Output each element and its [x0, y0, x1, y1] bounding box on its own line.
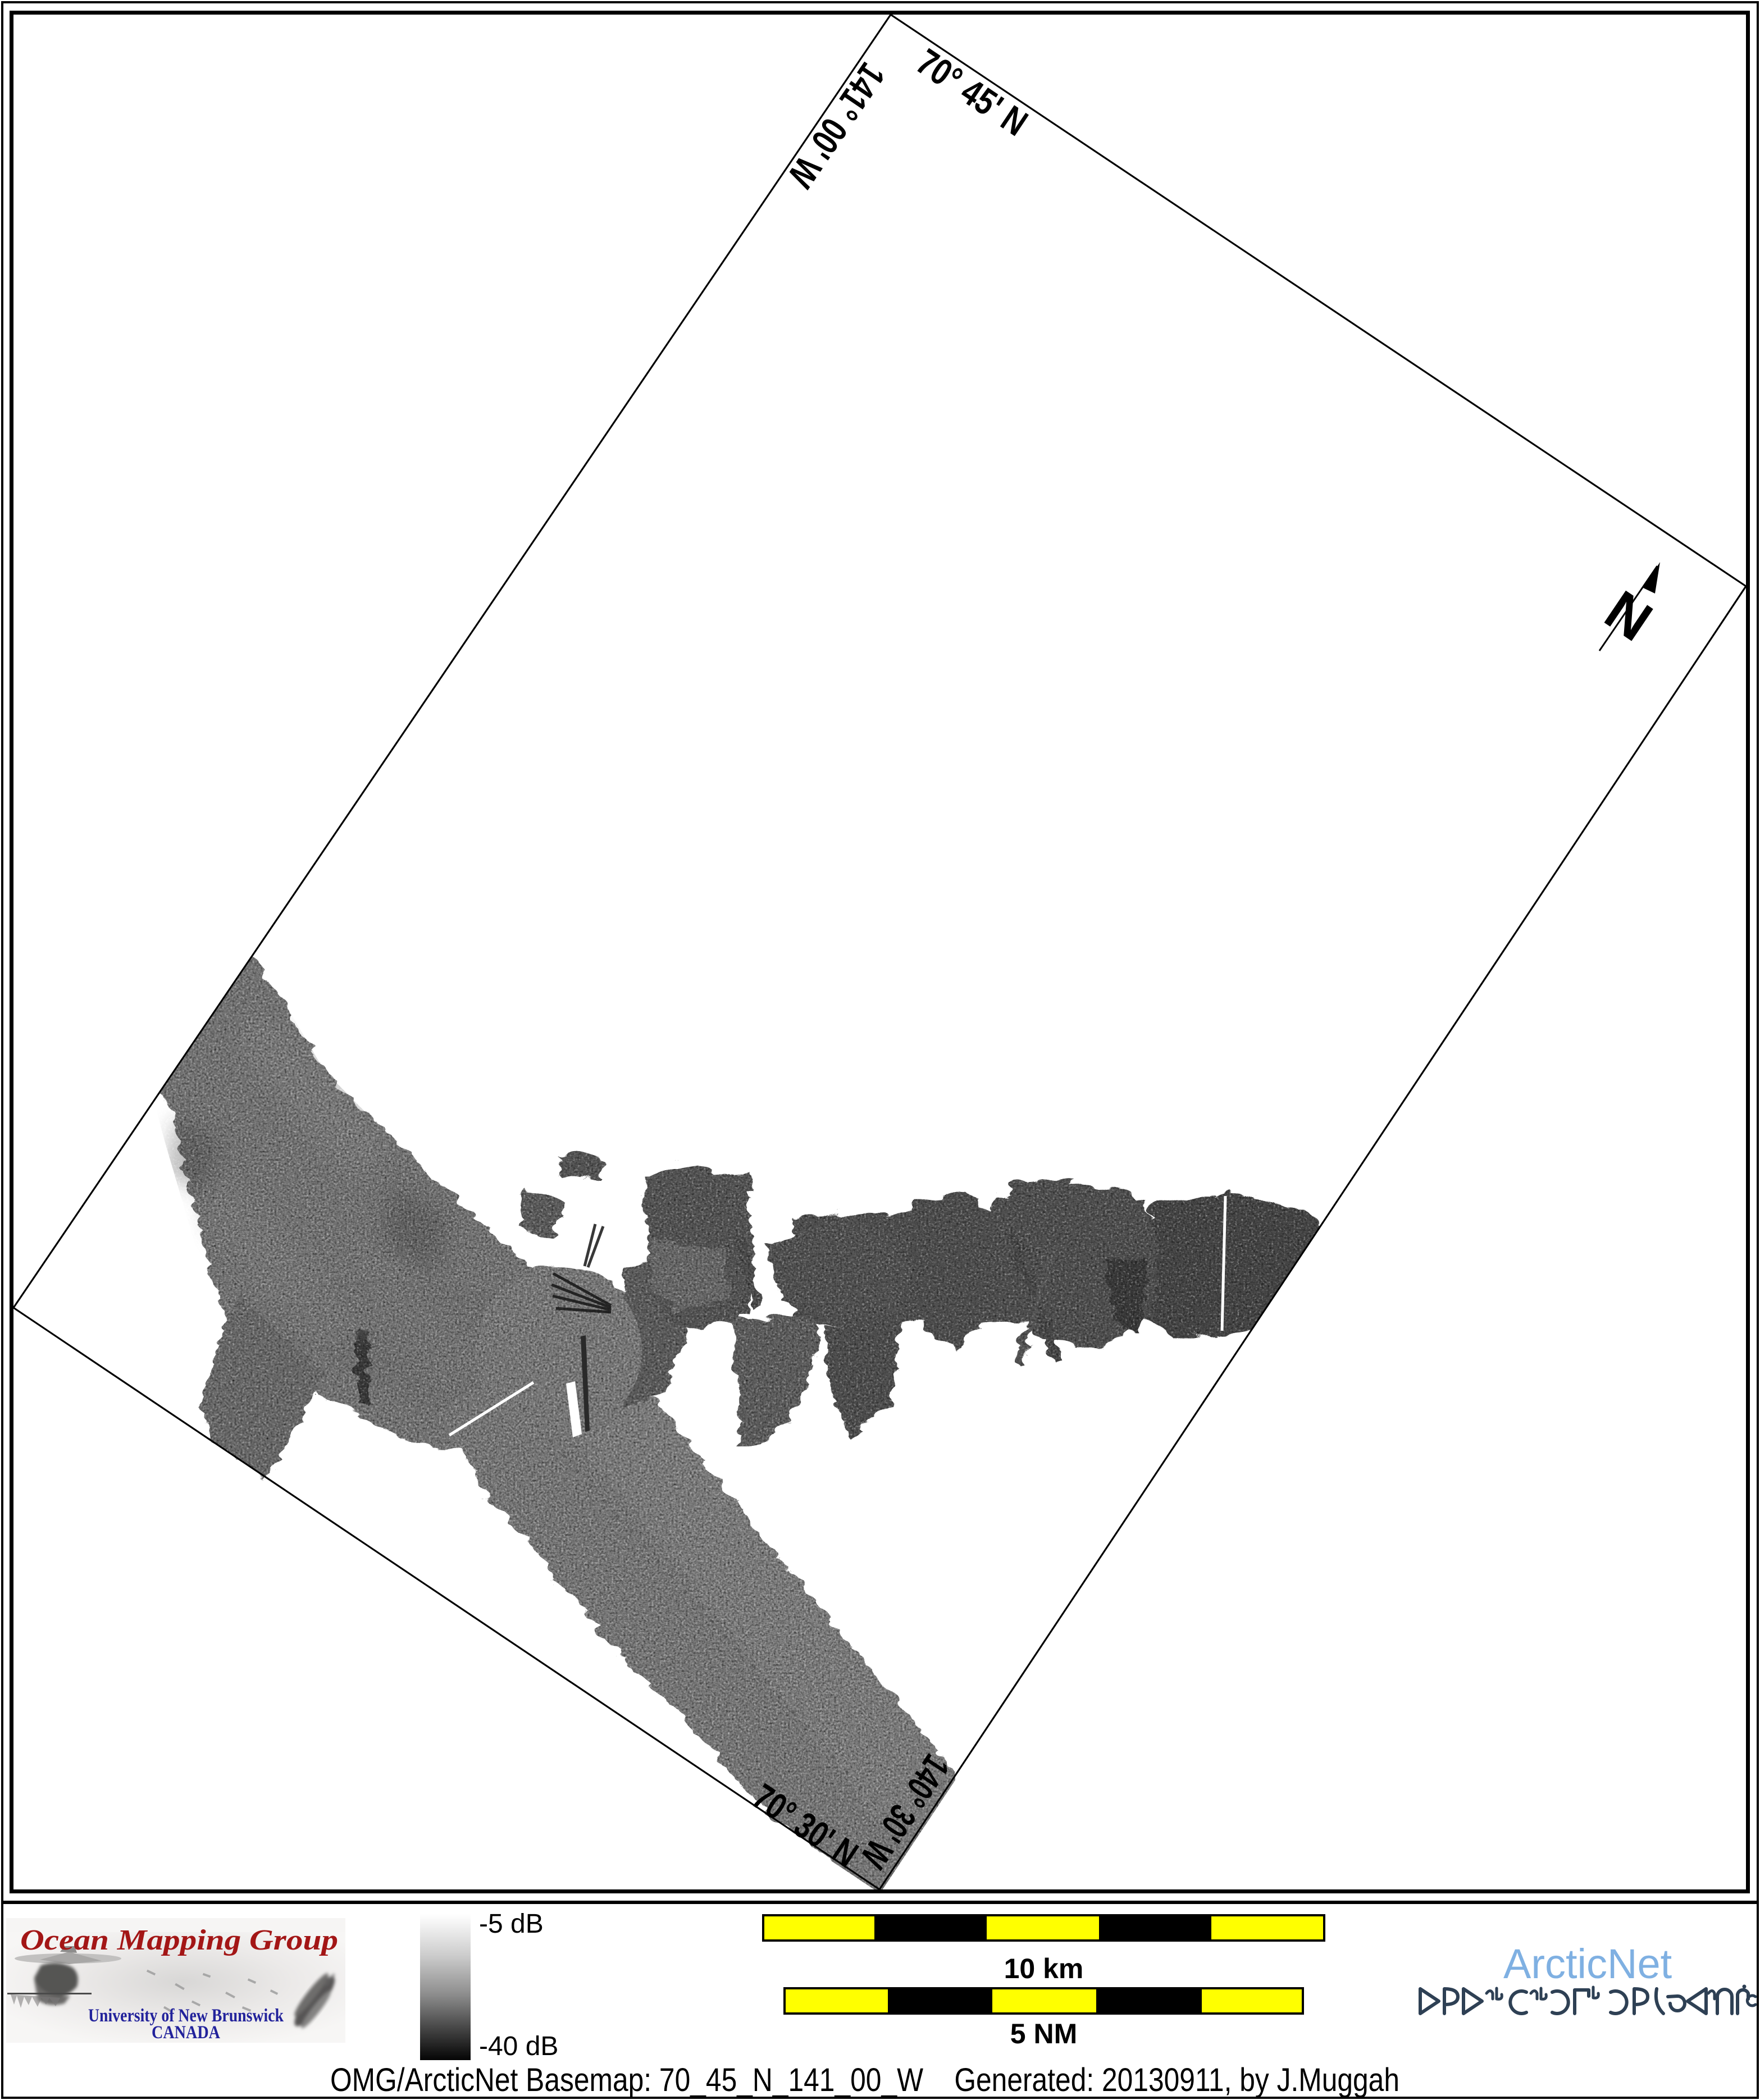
svg-text:CANADA: CANADA — [152, 2023, 220, 2043]
svg-text:Ocean Mapping Group: Ocean Mapping Group — [20, 1924, 338, 1956]
svg-text:70° 45' N: 70° 45' N — [909, 40, 1035, 144]
svg-text:OMG/ArcticNet Basemap: 70_45_N: OMG/ArcticNet Basemap: 70_45_N_141_00_W … — [330, 2062, 1399, 2098]
svg-text:141° 00' W: 141° 00' W — [780, 56, 893, 195]
